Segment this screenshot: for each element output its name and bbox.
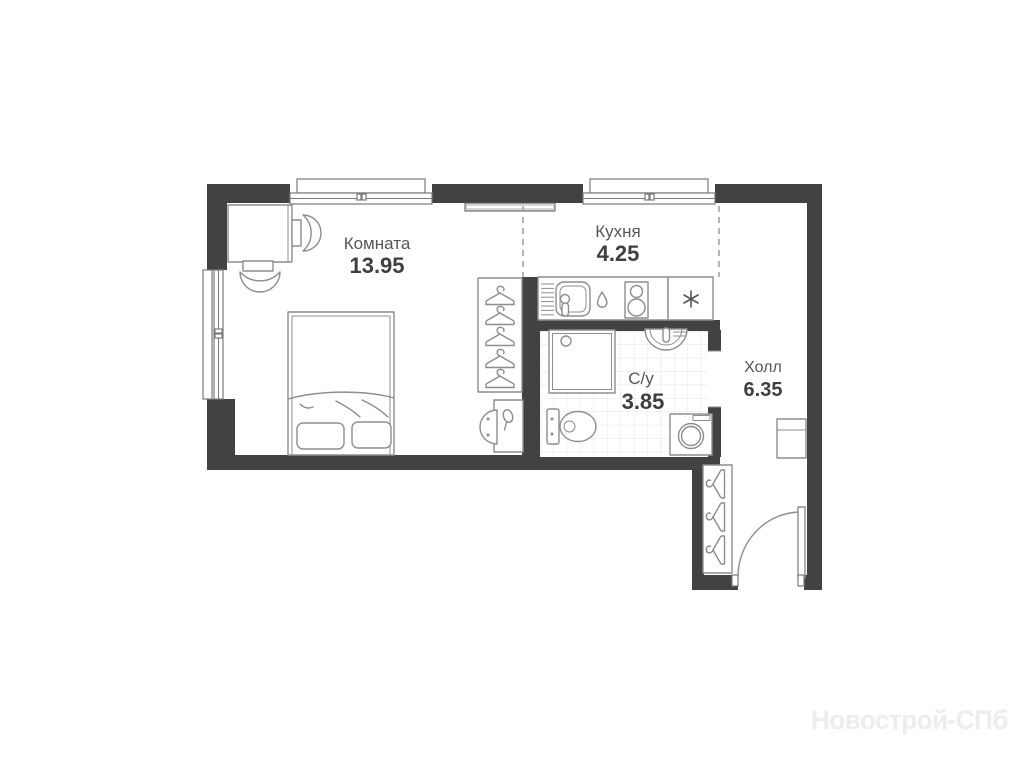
room-area: 13.95 (349, 253, 404, 278)
wall-right (807, 184, 822, 590)
wardrobe-body (478, 278, 522, 392)
faucet-spout (562, 303, 569, 316)
shower (549, 330, 615, 393)
entrance-door (732, 507, 805, 586)
wall-left-upper (207, 184, 227, 270)
window-sill (590, 179, 708, 193)
hall-label: Холл (744, 359, 782, 376)
window-transom (362, 194, 366, 200)
toilet-button (551, 418, 554, 421)
door-swing-arc (738, 512, 799, 577)
shower-tray-outer (549, 330, 615, 393)
window-transom (215, 334, 222, 338)
bathroom-area: 3.85 (622, 389, 665, 414)
floor-plan-page: Комната 13.95 Кухня 4.25 С/у 3.85 Холл 6… (0, 0, 1023, 768)
toilet-button (551, 433, 554, 436)
desk (228, 205, 292, 262)
wall-bottom-entry-left (692, 575, 738, 590)
window-transom (645, 194, 649, 200)
toilet-bowl (560, 412, 596, 442)
wall-top-middle (432, 184, 583, 203)
room-label: Комната (344, 234, 411, 253)
wall-hall-left (692, 457, 704, 588)
door-jamb (732, 575, 738, 586)
chair-backrest (240, 272, 280, 292)
toilet-tank (547, 409, 559, 444)
wall-top-right (715, 184, 822, 203)
stool-dot (487, 434, 490, 437)
vanity-top (494, 400, 523, 452)
kitchen-sink (556, 282, 590, 316)
kitchen-label: Кухня (595, 222, 641, 241)
wall-bottom-entry-right (804, 575, 822, 590)
kitchen-counter (538, 277, 668, 320)
wardrobe-room (478, 278, 522, 392)
toilet (547, 409, 596, 444)
desk-chair-right (292, 215, 321, 251)
window-transom (357, 194, 361, 200)
faucet-base (561, 295, 570, 304)
desk-chair-bottom (240, 261, 280, 292)
stove-body (625, 282, 648, 318)
wardrobe-hall (703, 465, 732, 573)
stool-dot (487, 418, 490, 421)
faucet (663, 328, 670, 342)
stool-seat (480, 410, 497, 444)
window-sill (203, 270, 212, 399)
wall-cabinet (777, 419, 806, 458)
wall-bathroom-right-upper (708, 330, 721, 351)
window-room (290, 179, 432, 204)
stool (480, 410, 497, 444)
window-sill (297, 179, 425, 193)
window-transom (650, 194, 654, 200)
door-jamb (798, 575, 804, 586)
chair-seat (243, 261, 273, 271)
cabinet-body (777, 419, 806, 458)
vanity-table (494, 400, 523, 452)
watermark-text: Новострой-СПб (811, 705, 1008, 735)
pillow (352, 422, 391, 448)
window-kitchen (583, 179, 715, 204)
pillow (297, 423, 344, 449)
window-transom (215, 329, 222, 333)
kitchen-area: 4.25 (597, 241, 640, 266)
chair-seat (292, 220, 301, 246)
bed (288, 312, 394, 455)
hall-area: 6.35 (744, 379, 783, 401)
radiator (465, 203, 555, 211)
desk-top (228, 205, 292, 262)
shower-drain-icon (561, 336, 571, 346)
washing-machine (670, 414, 712, 455)
bathroom-label: С/у (628, 369, 654, 388)
chair-backrest (303, 215, 321, 251)
floor-plan: Комната 13.95 Кухня 4.25 С/у 3.85 Холл 6… (0, 0, 1023, 768)
window-left (203, 270, 223, 399)
fridge (668, 277, 713, 320)
wall-bottom-main (207, 455, 720, 470)
stove (625, 282, 648, 318)
door-leaf (798, 507, 805, 578)
